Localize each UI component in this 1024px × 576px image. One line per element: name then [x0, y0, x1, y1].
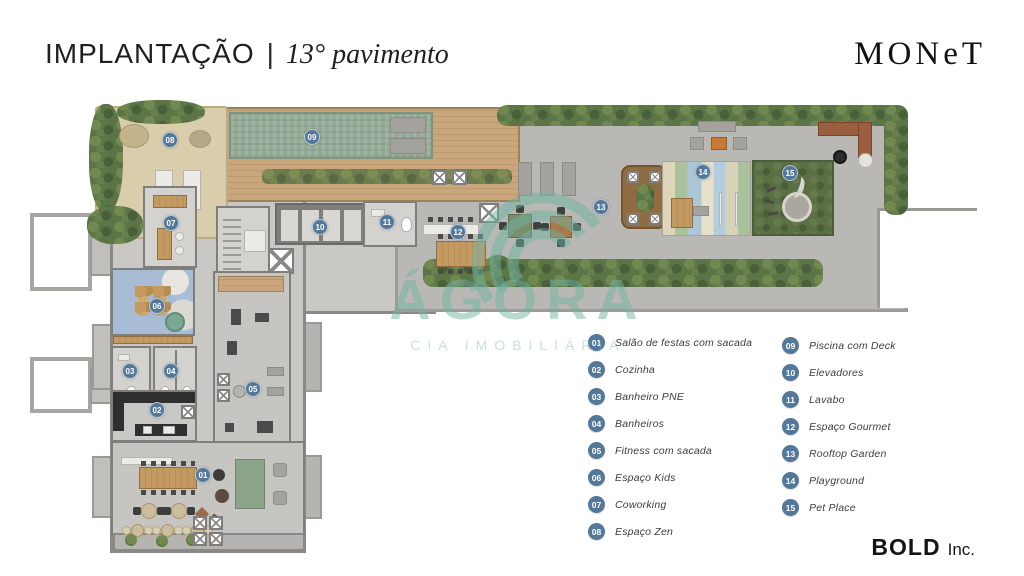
legend-item: 02Cozinha: [588, 361, 752, 378]
play-structure: [671, 198, 693, 228]
kitchen-counter: [113, 403, 124, 431]
gym-equipment: [227, 341, 237, 355]
shaft-grid: [193, 516, 225, 548]
armchair: [690, 137, 704, 150]
plan-badge-09: 09: [304, 129, 320, 145]
legend-badge: 03: [588, 388, 605, 405]
bold-logo-text: BOLD: [871, 534, 940, 561]
legend-label: Salão de festas com sacada: [615, 337, 752, 349]
legend-label: Banheiro PNE: [615, 391, 684, 403]
legend-label: Pet Place: [809, 502, 856, 514]
slide: [693, 206, 709, 216]
plan-badge-14: 14: [695, 164, 711, 180]
plan-badge-13: 13: [593, 199, 609, 215]
bold-logo-suffix: Inc.: [948, 540, 975, 560]
gym-equipment: [231, 309, 241, 325]
office-chair: [175, 246, 184, 255]
legend-item: 01Salão de festas com sacada: [588, 334, 752, 351]
legend-badge: 05: [588, 442, 605, 459]
swing-frame: [719, 192, 722, 226]
legend-item: 04Banheiros: [588, 415, 752, 432]
service-shaft: [217, 389, 230, 402]
armchair: [273, 491, 287, 505]
sofa-green: [235, 459, 265, 509]
toilet: [401, 217, 412, 232]
legend-item: 08Espaço Zen: [588, 523, 752, 540]
pet-toy: [768, 211, 778, 216]
pergola: [621, 165, 667, 229]
service-shaft: [452, 170, 467, 185]
legend-badge: 12: [782, 418, 799, 435]
plan-badge-03: 03: [122, 363, 138, 379]
lounger: [562, 162, 576, 196]
kids-shelf: [113, 336, 193, 344]
pergola-shaft: [627, 213, 639, 225]
service-shaft: [181, 405, 195, 419]
pergola-planter: [636, 184, 654, 212]
armchair: [273, 463, 287, 477]
pet-toy: [766, 186, 776, 193]
chair: [152, 526, 161, 535]
plan-badge-08: 08: [162, 132, 178, 148]
desk: [157, 228, 172, 260]
pool-lounger: [390, 117, 426, 133]
plan-badge-10: 10: [312, 219, 328, 235]
legend-badge: 10: [782, 364, 799, 381]
legend-label: Lavabo: [809, 394, 845, 406]
stair-landing: [244, 230, 266, 252]
legend-column-left: 01Salão de festas com sacada 02Cozinha 0…: [588, 334, 752, 540]
sink: [118, 354, 130, 361]
zen-rock: [189, 130, 211, 148]
armchair: [733, 137, 747, 150]
legend-label: Espaço Gourmet: [809, 421, 891, 433]
swing-frame: [735, 192, 738, 226]
legend-label: Rooftop Garden: [809, 448, 887, 460]
legend-item: 13Rooftop Garden: [782, 445, 896, 462]
zen-plants-top: [117, 100, 205, 124]
legend-badge: 04: [588, 415, 605, 432]
plan-badge-05: 05: [245, 381, 261, 397]
bench: [698, 121, 736, 132]
plan-badge-04: 04: [163, 363, 179, 379]
kitchen-island: [135, 424, 187, 436]
legend-label: Espaço Kids: [615, 472, 676, 484]
desk: [153, 195, 187, 208]
elevator-cab: [281, 210, 298, 241]
legend-item: 12Espaço Gourmet: [782, 418, 896, 435]
office-chair: [175, 232, 184, 241]
legend-item: 09Piscina com Deck: [782, 337, 896, 354]
plan-badge-02: 02: [149, 402, 165, 418]
side-table-orange: [711, 137, 727, 150]
legend-badge: 11: [782, 391, 799, 408]
plan-badge-07: 07: [163, 215, 179, 231]
fire-pit: [833, 150, 847, 164]
gym-equipment: [255, 313, 269, 322]
balcony-left-upper: [30, 213, 92, 291]
dining-chairs: [141, 461, 195, 466]
pergola-shaft: [649, 171, 661, 183]
gym-bench: [267, 367, 284, 376]
pergola-shaft: [627, 171, 639, 183]
service-shaft: [432, 170, 447, 185]
legend-badge: 14: [782, 472, 799, 489]
coffee-table: [213, 469, 225, 481]
legend-badge: 09: [782, 337, 799, 354]
plan-badge-12: 12: [450, 224, 466, 240]
legend-badge: 13: [782, 445, 799, 462]
fitness-room: [213, 271, 291, 445]
legend-badge: 06: [588, 469, 605, 486]
service-shaft: [193, 532, 207, 546]
deck-planters: [262, 169, 512, 184]
legend-badge: 01: [588, 334, 605, 351]
plan-badge-15: 15: [782, 165, 798, 181]
service-shaft: [193, 516, 207, 530]
pergola-shaft: [649, 213, 661, 225]
chair: [163, 507, 171, 515]
legend-badge: 15: [782, 499, 799, 516]
legend-item: 07Coworking: [588, 496, 752, 513]
legend-item: 14Playground: [782, 472, 896, 489]
terrace-notch: [877, 208, 977, 308]
round-rug: [165, 312, 185, 332]
gourmet-stools: [428, 217, 474, 222]
stove: [163, 426, 175, 434]
hedge-right: [884, 105, 908, 215]
dining-chairs: [141, 490, 195, 495]
legend-badge: 08: [588, 523, 605, 540]
service-shaft: [209, 516, 223, 530]
bottom-plants: [156, 535, 168, 547]
legend-label: Cozinha: [615, 364, 655, 376]
legend-item: 06Espaço Kids: [588, 469, 752, 486]
legend-item: 05Fitness com sacada: [588, 442, 752, 459]
coffee-table: [215, 489, 229, 503]
sink: [143, 426, 152, 434]
elevator-cab: [344, 210, 361, 241]
bold-inc-logo: BOLD Inc.: [871, 534, 975, 561]
service-shaft: [209, 532, 223, 546]
bottom-plants: [125, 534, 137, 546]
table: [141, 503, 157, 519]
gym-equipment: [257, 421, 273, 433]
fitness-wood-floor: [218, 276, 284, 292]
legend-label: Espaço Zen: [615, 526, 673, 538]
legend-badge: 02: [588, 361, 605, 378]
exercise-ball: [233, 385, 246, 398]
legend-label: Piscina com Deck: [809, 340, 896, 352]
pet-toy: [764, 199, 774, 204]
legend-badge: 07: [588, 496, 605, 513]
zen-rock: [119, 124, 149, 148]
service-shaft: [217, 373, 230, 386]
gym-equipment: [225, 423, 234, 432]
gym-bench: [267, 387, 284, 396]
legend-label: Playground: [809, 475, 864, 487]
balcony-left-lower: [30, 357, 92, 413]
round-table: [858, 153, 873, 168]
stairwell: [216, 206, 270, 276]
plan-badge-01: 01: [195, 467, 211, 483]
legend-item: 11Lavabo: [782, 391, 896, 408]
plan-badge-06: 06: [149, 298, 165, 314]
zen-plants-left: [89, 104, 123, 212]
legend-label: Elevadores: [809, 367, 864, 379]
dining-table: [139, 467, 197, 489]
legend-item: 15Pet Place: [782, 499, 896, 516]
table: [171, 503, 187, 519]
plan-badge-11: 11: [379, 214, 395, 230]
chair: [133, 507, 141, 515]
legend-column-right: 09Piscina com Deck 10Elevadores 11Lavabo…: [782, 337, 896, 516]
legend-label: Banheiros: [615, 418, 664, 430]
zen-plants-bottom: [87, 206, 143, 244]
pool-lounger: [390, 138, 426, 154]
stair-treads: [223, 214, 241, 270]
legend-label: Fitness com sacada: [615, 445, 712, 457]
legend-label: Coworking: [615, 499, 666, 511]
legend-item: 03Banheiro PNE: [588, 388, 752, 405]
legend-item: 10Elevadores: [782, 364, 896, 381]
